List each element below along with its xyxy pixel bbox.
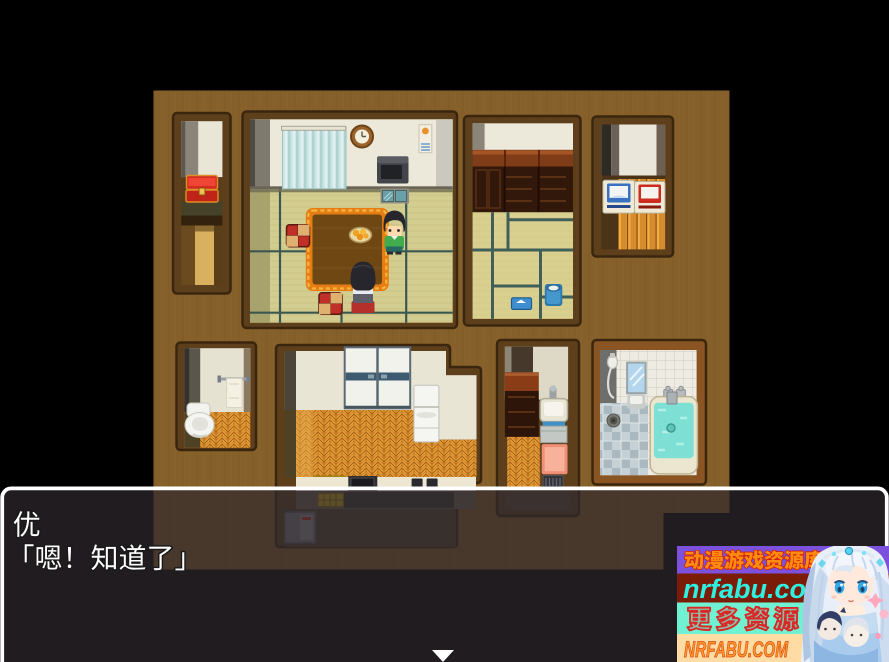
svg-text:NRFABU.COM: NRFABU.COM: [684, 637, 788, 662]
